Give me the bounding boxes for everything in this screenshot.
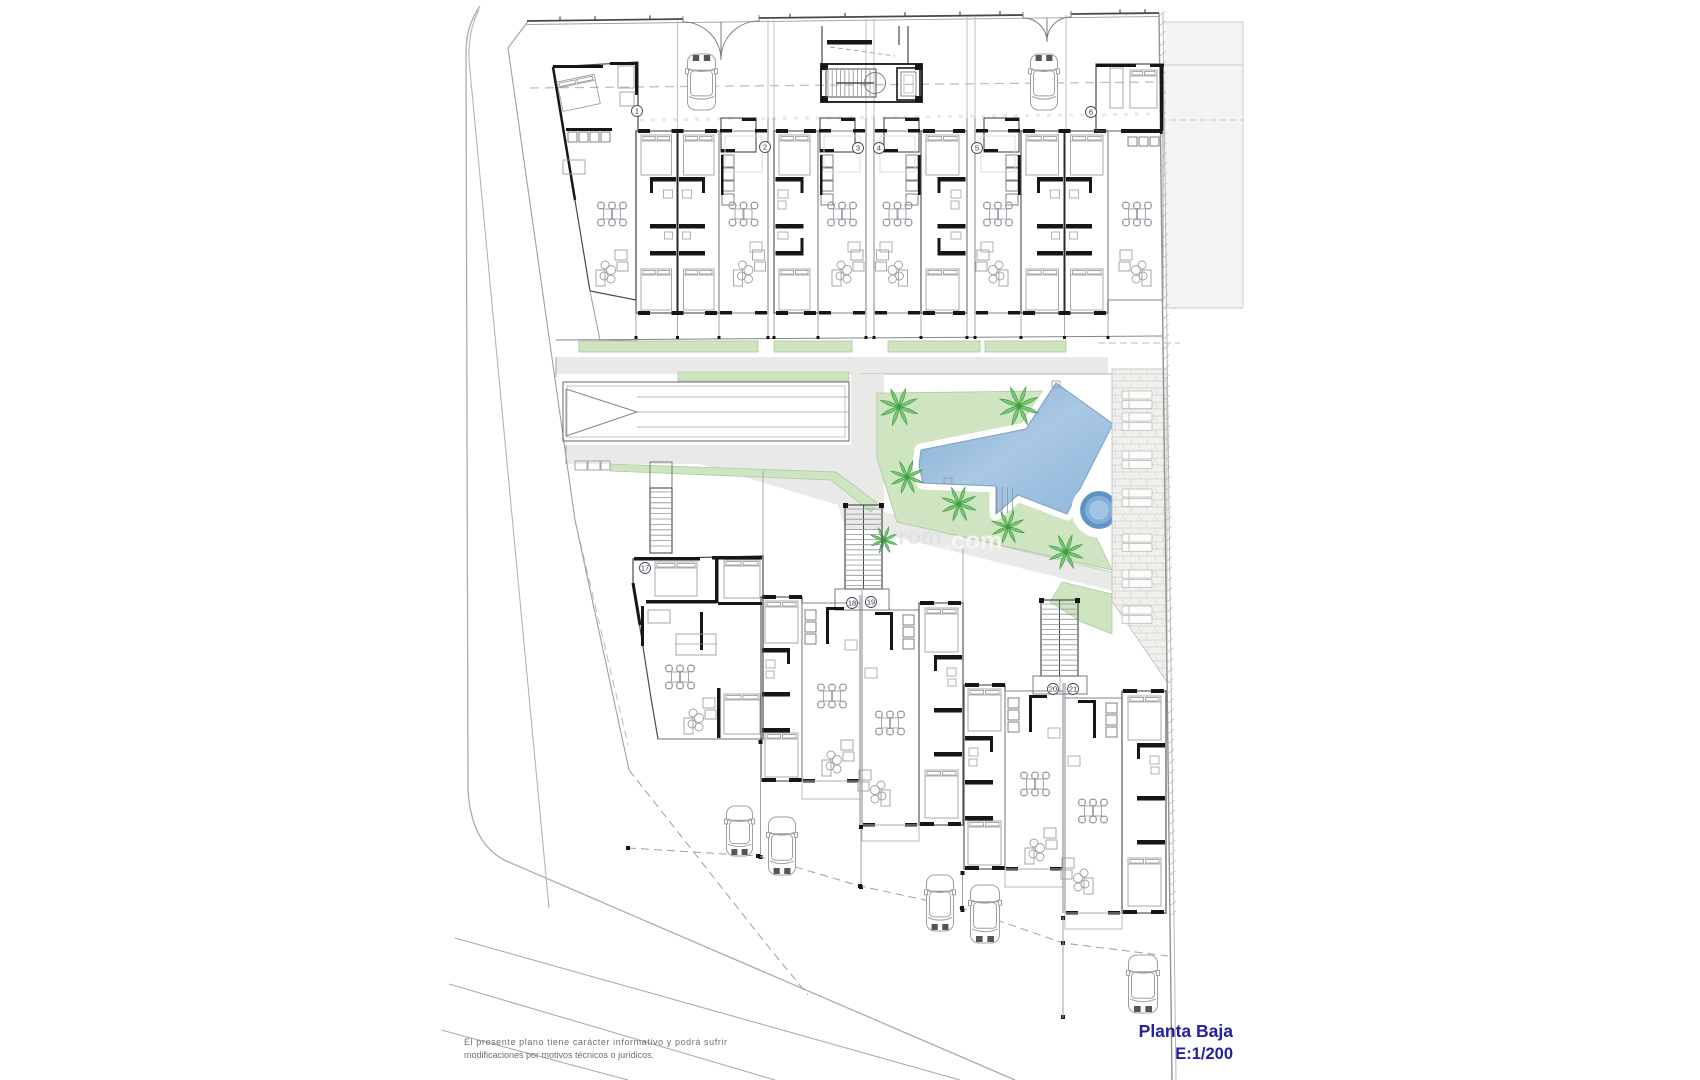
svg-text:4: 4 <box>877 144 881 153</box>
svg-text:rom: rom <box>898 523 941 549</box>
svg-text:6: 6 <box>1089 108 1093 117</box>
svg-text:2: 2 <box>763 143 767 152</box>
svg-text:1: 1 <box>635 107 639 116</box>
svg-text:21: 21 <box>1069 685 1077 694</box>
svg-text:El presente plano tiene caráct: El presente plano tiene carácter informa… <box>464 1037 727 1047</box>
svg-text:20: 20 <box>1049 685 1057 694</box>
svg-text:Planta Baja: Planta Baja <box>1139 1021 1234 1041</box>
svg-text:3: 3 <box>856 144 860 153</box>
svg-text:19: 19 <box>867 598 875 607</box>
svg-text:modificaciones por motivos téc: modificaciones por motivos técnicos o ju… <box>464 1050 654 1060</box>
svg-text:E:1/200: E:1/200 <box>1175 1045 1233 1063</box>
svg-text:18: 18 <box>848 599 856 608</box>
svg-text:17: 17 <box>641 564 649 573</box>
svg-text:.com: .com <box>944 527 1002 555</box>
svg-text:5: 5 <box>975 144 979 153</box>
